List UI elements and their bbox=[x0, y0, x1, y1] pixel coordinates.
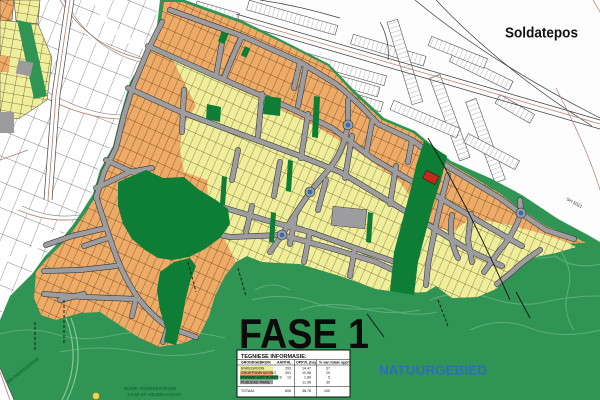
svg-text:606: 606 bbox=[285, 389, 291, 393]
svg-text:5: 5 bbox=[328, 376, 330, 380]
svg-text:3.0 Ml ST. HELENA HOOG: 3.0 Ml ST. HELENA HOOG bbox=[127, 392, 182, 397]
svg-text:293: 293 bbox=[285, 367, 291, 371]
svg-text:12: 12 bbox=[287, 376, 291, 380]
svg-text:11.08: 11.08 bbox=[302, 380, 311, 384]
svg-text:37: 37 bbox=[326, 367, 330, 371]
svg-text:OPPVL (ha): OPPVL (ha) bbox=[296, 361, 317, 365]
svg-text:Soldatepos: Soldatepos bbox=[505, 25, 578, 42]
svg-text:NUWE VOORGESTELDE: NUWE VOORGESTELDE bbox=[124, 386, 176, 391]
svg-text:% van totale opprv: % van totale opprv bbox=[319, 361, 351, 365]
svg-text:29: 29 bbox=[326, 371, 330, 375]
svg-text:PUBLIEKE PAAIE: PUBLIEKE PAAIE bbox=[241, 380, 270, 384]
svg-text:38.76: 38.76 bbox=[302, 389, 311, 393]
svg-text:PRIVAAT OOP RUIMTES: PRIVAAT OOP RUIMTES bbox=[241, 376, 282, 380]
svg-text:NATUURGEBIED: NATUURGEBIED bbox=[379, 363, 487, 378]
svg-text:100: 100 bbox=[324, 389, 330, 393]
svg-text:30: 30 bbox=[326, 380, 330, 384]
svg-text:10.98: 10.98 bbox=[302, 371, 311, 375]
svg-text:14.47: 14.47 bbox=[302, 367, 311, 371]
svg-text:1.89: 1.89 bbox=[304, 376, 311, 380]
svg-text:TEGNIESE INFORMASIE:: TEGNIESE INFORMASIE: bbox=[241, 354, 307, 360]
svg-text:AANTAL: AANTAL bbox=[277, 361, 292, 365]
svg-text:GRONDGEBRUIK: GRONDGEBRUIK bbox=[241, 361, 271, 365]
svg-text:GROEPSBEHUISING: GROEPSBEHUISING bbox=[241, 371, 276, 375]
svg-text:ENKELWOON: ENKELWOON bbox=[241, 367, 265, 371]
svg-text:301: 301 bbox=[285, 371, 291, 375]
svg-text:TOTAAL: TOTAAL bbox=[241, 389, 255, 393]
